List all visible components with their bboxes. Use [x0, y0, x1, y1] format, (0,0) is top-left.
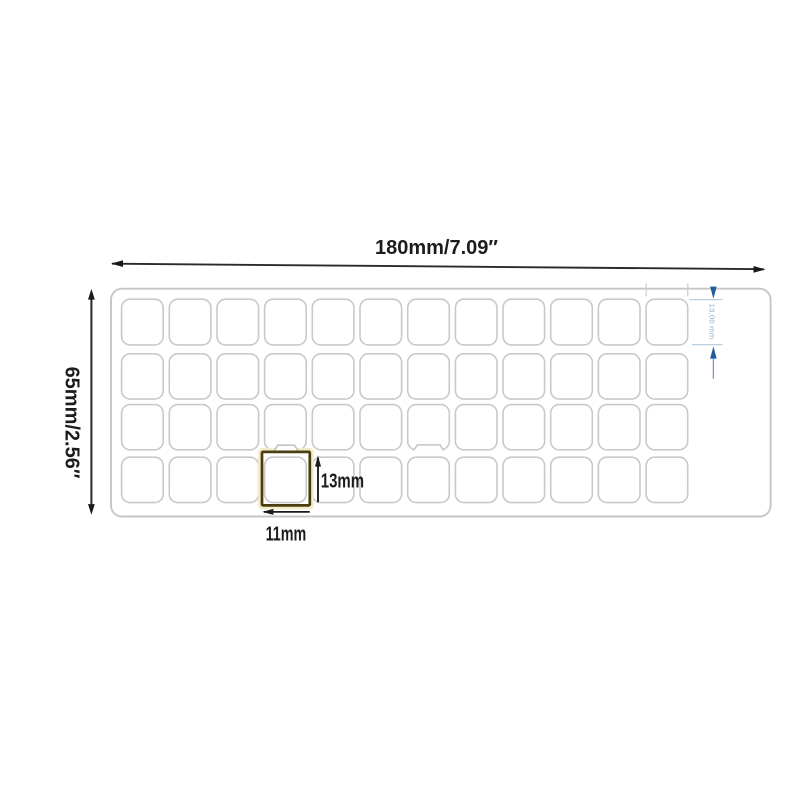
- svg-text:13mm: 13mm: [321, 469, 364, 492]
- svg-text:11mm: 11mm: [266, 522, 307, 545]
- svg-text:65mm/2.56″: 65mm/2.56″: [61, 367, 83, 479]
- svg-text:13.00 mm: 13.00 mm: [708, 304, 717, 340]
- svg-text:180mm/7.09″: 180mm/7.09″: [375, 237, 498, 259]
